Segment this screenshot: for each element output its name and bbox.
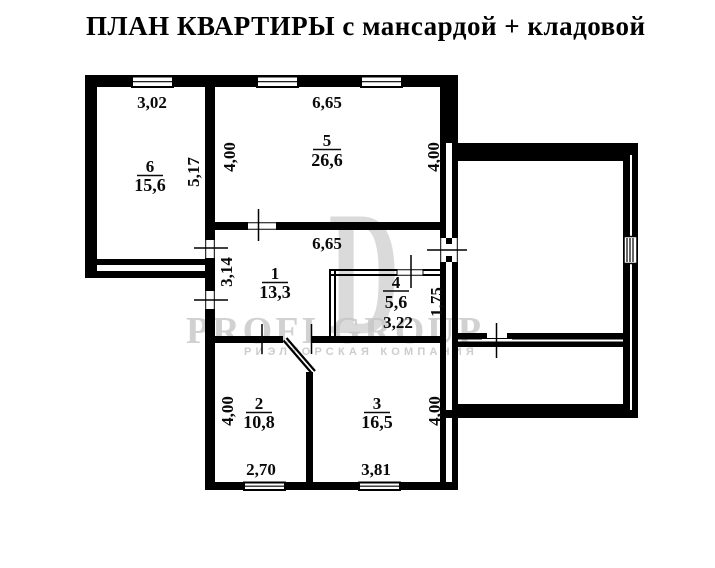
room1-label: 1 13,3	[259, 264, 291, 302]
window-room5-top-right	[361, 77, 402, 88]
vent-window-annex-right	[624, 237, 637, 264]
dim-room4-height-right: 1,75	[427, 287, 446, 317]
dim-room5-height-left: 4,00	[220, 142, 239, 172]
room3-label: 3 16,5	[361, 394, 393, 432]
dim-room6-width: 3,02	[137, 93, 167, 112]
room6-label: 6 15,6	[134, 157, 166, 195]
page: ПЛАН КВАРТИРЫ с мансардой + кладовой D P…	[0, 0, 715, 568]
dim-room3-height-right: 4,00	[425, 396, 444, 426]
room5-number: 5	[323, 131, 332, 150]
room6-number: 6	[146, 157, 155, 176]
room2-number: 2	[255, 394, 264, 413]
dim-room5-width: 6,65	[312, 93, 342, 112]
dim-room6-height: 5,17	[184, 157, 203, 187]
room2-label: 2 10,8	[243, 394, 275, 432]
room3-area: 16,5	[361, 412, 393, 432]
dim-room2-width-bottom: 2,70	[246, 460, 276, 479]
dim-room4-width: 3,22	[383, 313, 413, 332]
room5-label: 5 26,6	[311, 131, 343, 170]
dim-room3-width-bottom: 3,81	[361, 460, 391, 479]
window-room3-bottom	[359, 483, 400, 491]
room5-area: 26,6	[311, 150, 343, 170]
room6-area: 15,6	[134, 175, 166, 195]
dim-room5-height-right: 4,00	[424, 142, 443, 172]
floor-plan: D PROFI GROUP РИЭЛТОРСКАЯ КОМПАНИЯ	[0, 0, 715, 568]
window-room6-top	[132, 77, 173, 88]
room1-number: 1	[271, 264, 280, 283]
room3-number: 3	[373, 394, 382, 413]
room2-area: 10,8	[243, 412, 275, 432]
dim-room1-height-left: 3,14	[217, 257, 236, 287]
dim-room2-height-left: 4,00	[218, 396, 237, 426]
room1-area: 13,3	[259, 282, 291, 302]
room4-area: 5,6	[385, 292, 408, 312]
room4-number: 4	[392, 273, 401, 292]
window-room5-top-left	[257, 77, 298, 88]
window-room2-bottom	[244, 483, 285, 491]
dim-room1-width: 6,65	[312, 234, 342, 253]
